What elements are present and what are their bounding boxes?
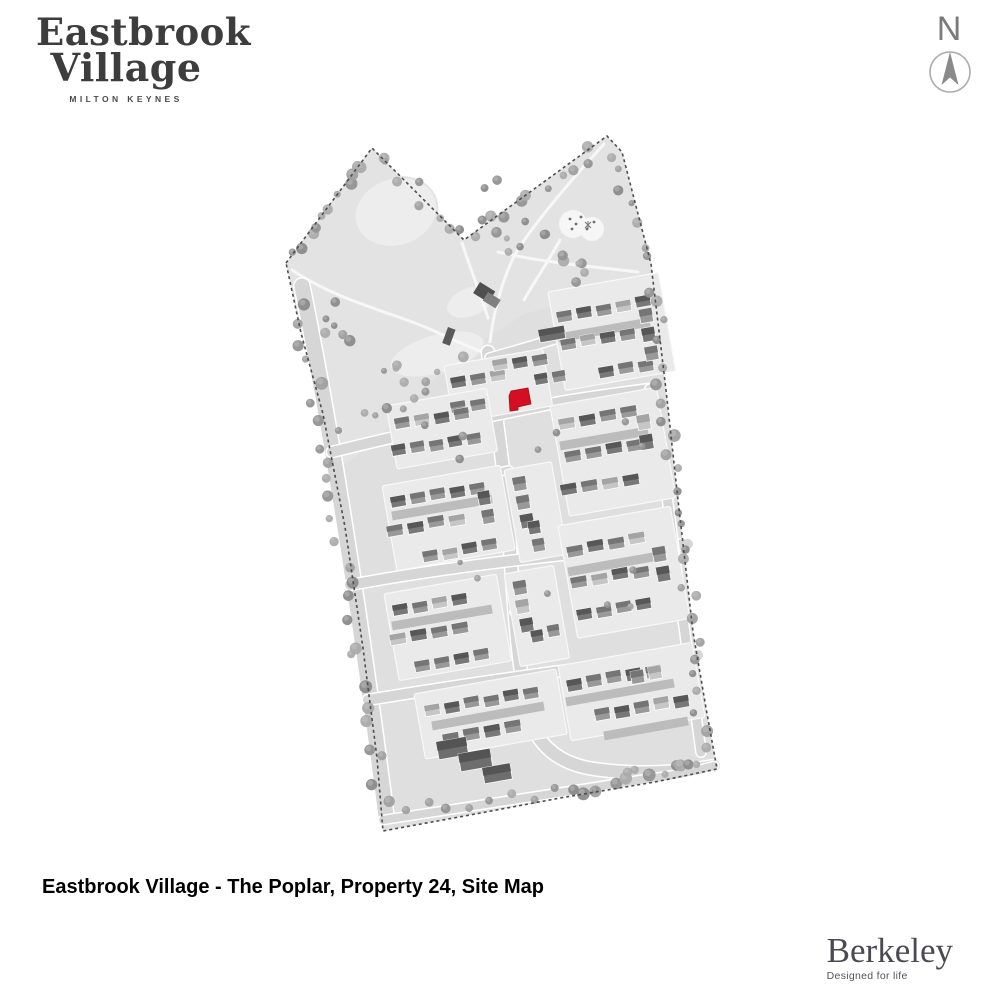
tree-highlight — [657, 418, 662, 423]
tree-highlight — [703, 744, 708, 749]
tree-highlight — [458, 560, 461, 563]
tree-highlight — [324, 492, 330, 498]
tree-highlight — [629, 201, 632, 204]
tree-highlight — [382, 368, 385, 371]
map-caption: Eastbrook Village - The Poplar, Property… — [42, 876, 544, 899]
tree-highlight — [506, 249, 510, 253]
tree-highlight — [475, 576, 478, 579]
tree-highlight — [401, 378, 406, 383]
tree-highlight — [546, 186, 549, 189]
tree-highlight — [314, 416, 320, 422]
tree-highlight — [303, 356, 307, 360]
tree-highlight — [690, 671, 694, 675]
tree-highlight — [487, 212, 493, 218]
tree-highlight — [630, 567, 634, 571]
tree-highlight — [294, 320, 299, 325]
tree-highlight — [383, 404, 388, 409]
tree-highlight — [393, 361, 398, 366]
tree-highlight — [559, 251, 564, 256]
tree-highlight — [652, 380, 658, 386]
tree-highlight — [422, 422, 426, 426]
tree-highlight — [605, 602, 608, 605]
tree-highlight — [459, 352, 464, 357]
tree-highlight — [508, 790, 512, 794]
tree-highlight — [348, 651, 352, 655]
tree-highlight — [385, 797, 391, 803]
tree-highlight — [552, 785, 556, 789]
tree-highlight — [362, 410, 366, 414]
tree-highlight — [493, 228, 498, 233]
brand-tagline: Designed for life — [827, 970, 953, 982]
tree-highlight — [693, 687, 697, 691]
tree-highlight — [583, 142, 589, 148]
tree-highlight — [654, 337, 658, 341]
berkeley-logo: Berkeley Designed for life — [827, 933, 953, 982]
playground-equipment-icon — [569, 218, 572, 221]
tree-highlight — [675, 465, 679, 469]
page: Eastbrook Village MILTON KEYNES N Eastbr… — [0, 0, 1000, 1000]
tree-highlight — [403, 807, 407, 811]
tree-highlight — [561, 172, 565, 176]
tree-highlight — [585, 160, 590, 165]
tree-highlight — [693, 592, 698, 597]
tree-highlight — [351, 644, 357, 650]
tree-highlight — [691, 710, 695, 714]
tree-highlight — [366, 746, 371, 751]
tree-highlight — [661, 317, 665, 321]
tree-highlight — [422, 378, 426, 382]
tree-highlight — [416, 179, 420, 183]
tree-highlight — [633, 219, 638, 224]
tree-highlight — [324, 459, 329, 464]
tree-highlight — [299, 300, 305, 306]
tree-highlight — [339, 331, 344, 336]
tree-highlight — [581, 269, 585, 273]
playground-equipment-icon — [575, 223, 578, 226]
tree-highlight — [435, 369, 438, 372]
tree-highlight — [505, 236, 508, 239]
tree-highlight — [323, 316, 327, 320]
tree-highlight — [479, 216, 484, 221]
tree-highlight — [678, 585, 682, 589]
tree-highlight — [541, 231, 546, 236]
playground-equipment-icon — [593, 221, 596, 224]
tree-highlight — [364, 703, 370, 709]
tree-highlight — [331, 538, 336, 543]
tree-highlight — [662, 772, 666, 776]
tree-highlight — [657, 400, 662, 405]
tree-highlight — [494, 176, 499, 181]
tree-highlight — [401, 406, 405, 410]
tree-highlight — [532, 797, 536, 801]
tree-highlight — [332, 298, 337, 303]
tree-highlight — [632, 767, 636, 771]
tree-highlight — [608, 154, 613, 159]
tree-highlight — [373, 413, 376, 416]
tree-highlight — [321, 329, 326, 334]
tree-highlight — [343, 616, 348, 621]
tree-highlight — [697, 639, 702, 644]
playground-equipment-icon — [580, 216, 583, 219]
tree-highlight — [426, 799, 430, 803]
tree-highlight — [378, 752, 383, 757]
tree-highlight — [466, 805, 470, 809]
tree-highlight — [336, 428, 340, 432]
brand-name: Berkeley — [827, 933, 953, 970]
playground-area — [580, 217, 604, 241]
tree-highlight — [482, 185, 486, 189]
tree-highlight — [456, 456, 460, 460]
tree-highlight — [639, 443, 643, 447]
tree-highlight — [316, 446, 320, 450]
tree-highlight — [644, 770, 650, 776]
tree-highlight — [517, 244, 521, 248]
tree-highlight — [593, 787, 597, 791]
tree-highlight — [676, 761, 682, 767]
tree-highlight — [411, 395, 415, 399]
tree-highlight — [691, 656, 696, 661]
tree-highlight — [317, 378, 323, 384]
tree-highlight — [612, 779, 618, 785]
tree-highlight — [570, 166, 575, 171]
tree-highlight — [645, 289, 650, 294]
tree-highlight — [367, 780, 373, 786]
tree-highlight — [393, 178, 398, 183]
tree-highlight — [362, 716, 368, 722]
tree-highlight — [327, 516, 331, 520]
tree-highlight — [628, 604, 631, 607]
tree-highlight — [361, 682, 367, 688]
tree-highlight — [323, 475, 327, 479]
tree-highlight — [576, 261, 579, 264]
tree-highlight — [572, 278, 577, 283]
tree-highlight — [456, 226, 460, 230]
tree-highlight — [442, 805, 447, 810]
tree-highlight — [535, 447, 538, 450]
site-map — [0, 0, 1000, 1000]
tree-highlight — [422, 388, 426, 392]
tree-highlight — [623, 419, 627, 423]
tree-highlight — [694, 761, 698, 765]
tree-highlight — [344, 591, 349, 596]
tree-highlight — [460, 433, 464, 437]
tree-highlight — [294, 341, 300, 347]
tree-highlight — [624, 768, 629, 773]
tree-highlight — [290, 249, 294, 253]
tree-highlight — [415, 202, 420, 207]
tree-highlight — [486, 798, 490, 802]
tree-highlight — [554, 430, 558, 434]
tree-highlight — [545, 591, 548, 594]
tree-highlight — [522, 218, 526, 222]
tree-highlight — [662, 450, 668, 456]
tree-highlight — [703, 726, 709, 732]
tree-highlight — [685, 760, 690, 765]
tree-highlight — [614, 186, 619, 191]
tree-highlight — [307, 400, 311, 404]
tree-highlight — [570, 786, 575, 791]
tree-highlight — [332, 323, 335, 326]
tree-highlight — [616, 166, 619, 169]
playground-equipment-icon — [571, 228, 574, 231]
